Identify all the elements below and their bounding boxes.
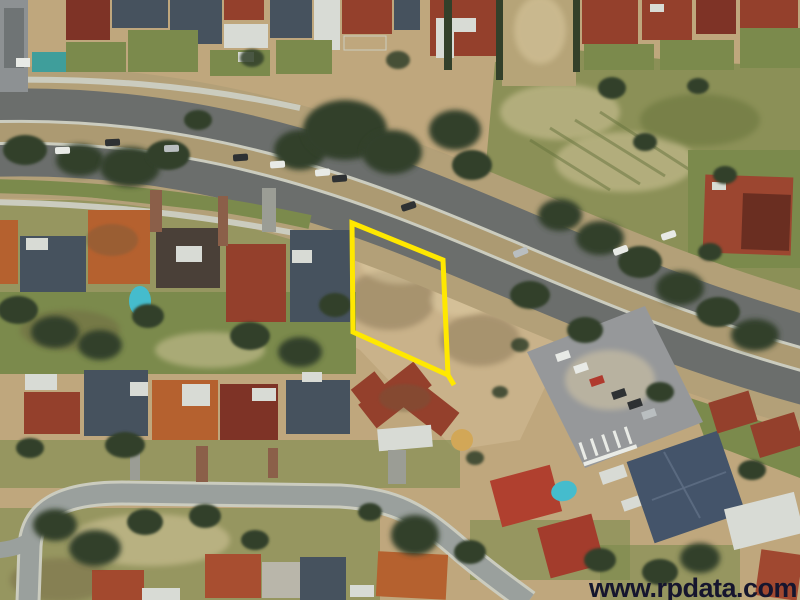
street-branch [0, 540, 31, 551]
tree [429, 110, 481, 150]
hedge [496, 0, 503, 80]
house-roof [270, 0, 312, 38]
roof-panel [302, 372, 322, 382]
house-roof [740, 0, 798, 28]
house-roof [741, 193, 791, 251]
house-roof [25, 374, 57, 390]
house-roof [142, 588, 180, 600]
driveway [262, 188, 276, 232]
tree [358, 503, 382, 521]
yard [276, 40, 332, 74]
car [105, 139, 120, 147]
tree [538, 199, 582, 231]
tree [738, 460, 766, 480]
gable [650, 4, 664, 12]
tree [105, 432, 145, 458]
tree [319, 293, 351, 317]
tree [696, 297, 740, 327]
house-roof [286, 380, 350, 434]
driveway [388, 450, 406, 484]
tree [127, 509, 163, 535]
house-roof [92, 570, 144, 600]
tree [362, 130, 422, 174]
car [164, 145, 179, 153]
tree [452, 150, 492, 180]
tree [698, 243, 722, 261]
tree [687, 78, 709, 94]
aerial-map-viewport: www.rpdata.com [0, 0, 800, 600]
car [315, 168, 331, 176]
roof-panel [176, 246, 202, 262]
tree [567, 317, 603, 343]
tree [69, 530, 121, 566]
tree [189, 504, 221, 528]
driveway [218, 196, 228, 246]
tree [598, 77, 626, 99]
house-roof [376, 551, 448, 600]
shrub [511, 338, 529, 352]
yard [584, 44, 654, 70]
car [332, 174, 348, 182]
house-roof [642, 0, 692, 40]
house-roof [224, 24, 268, 48]
tree [646, 382, 674, 402]
watermark: www.rpdata.com [588, 573, 797, 600]
tree [184, 110, 212, 130]
house-roof [66, 0, 110, 40]
car [16, 58, 30, 67]
roof-panel [252, 388, 276, 401]
roof-panel [130, 382, 148, 396]
driveway [196, 446, 208, 482]
house-roof [262, 562, 302, 598]
roof-panel [182, 384, 210, 406]
tree [132, 304, 164, 328]
house-roof [84, 370, 148, 436]
grass-shade [640, 94, 760, 146]
top-right-houses [582, 0, 800, 70]
house-roof [394, 0, 420, 30]
house-roof [582, 0, 638, 44]
yard [128, 30, 198, 72]
tree [680, 543, 720, 573]
car [55, 147, 70, 155]
roof-panel [350, 585, 374, 597]
house-roof [300, 557, 346, 600]
car [233, 153, 248, 161]
tree [230, 322, 270, 350]
yard [740, 28, 800, 68]
tree [78, 330, 122, 360]
house-roof [24, 392, 80, 434]
hedge [573, 0, 580, 72]
aerial-map: www.rpdata.com [0, 0, 800, 600]
house-roof [226, 244, 286, 322]
carport-roof [292, 250, 312, 263]
shrub [492, 386, 508, 398]
tree [16, 438, 44, 458]
tree [713, 166, 737, 184]
tree [633, 133, 657, 151]
right-edge-house [703, 174, 794, 255]
shrub [466, 451, 484, 465]
house-roof [342, 0, 392, 34]
driveway [268, 448, 278, 478]
house-roof [224, 0, 264, 20]
house-roof [696, 0, 736, 34]
yard [660, 40, 734, 70]
house-roof [112, 0, 168, 28]
house-roof [205, 554, 261, 598]
garage-roof [377, 425, 433, 452]
tree [241, 530, 269, 550]
tree [391, 515, 439, 555]
tree [510, 281, 550, 309]
tree [656, 271, 704, 305]
shrub [386, 51, 410, 69]
hedge [444, 0, 452, 70]
tree [3, 135, 47, 165]
tree [584, 548, 616, 572]
car [270, 160, 285, 168]
carport-roof [26, 238, 48, 250]
shrub [240, 49, 264, 67]
driveway [150, 190, 162, 232]
tree [454, 540, 486, 564]
tree [731, 319, 779, 351]
house-roof [0, 220, 18, 284]
tree [33, 509, 77, 541]
tree [278, 337, 322, 367]
sand-patch [451, 429, 473, 451]
tree [146, 140, 190, 170]
yard [66, 42, 126, 72]
tree [31, 316, 79, 348]
